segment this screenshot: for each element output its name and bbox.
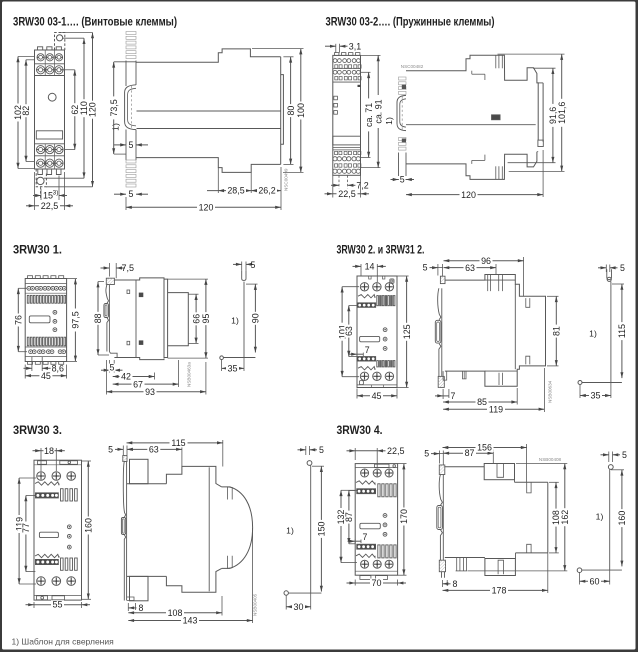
svg-text:160: 160 — [617, 511, 627, 526]
svg-text:115: 115 — [171, 438, 185, 448]
svg-text:66: 66 — [191, 314, 201, 324]
svg-text:70: 70 — [371, 578, 381, 588]
svg-text:5: 5 — [622, 450, 627, 460]
svg-text:125: 125 — [402, 324, 412, 339]
svg-text:88: 88 — [93, 313, 103, 323]
svg-text:8,6: 8,6 — [52, 364, 64, 374]
svg-text:85: 85 — [477, 397, 487, 407]
svg-text:63: 63 — [149, 445, 159, 455]
svg-text:76: 76 — [14, 315, 24, 325]
svg-text:81: 81 — [552, 326, 562, 336]
svg-text:22,5: 22,5 — [41, 201, 59, 211]
svg-text:1): 1) — [286, 525, 294, 535]
svg-text:160: 160 — [84, 518, 94, 533]
svg-text:101,6: 101,6 — [557, 102, 567, 124]
svg-text:100: 100 — [296, 103, 306, 118]
svg-text:5: 5 — [129, 189, 134, 199]
svg-text:1) Шаблон для сверления: 1) Шаблон для сверления — [12, 637, 115, 647]
svg-text:3RW30 2. и 3RW31 2.: 3RW30 2. и 3RW31 2. — [337, 243, 425, 257]
svg-text:5: 5 — [129, 140, 134, 150]
svg-text:5: 5 — [108, 444, 113, 454]
svg-text:8: 8 — [453, 579, 458, 589]
svg-text:22,5: 22,5 — [387, 446, 405, 456]
svg-text:NSC00482: NSC00482 — [401, 64, 424, 69]
svg-text:26,2: 26,2 — [258, 186, 275, 196]
svg-text:35: 35 — [227, 363, 237, 373]
svg-text:5: 5 — [620, 263, 625, 273]
svg-text:NSB00405: NSB00405 — [253, 593, 258, 616]
svg-text:7: 7 — [451, 391, 456, 401]
svg-text:120: 120 — [461, 190, 476, 200]
svg-text:NSC00499: NSC00499 — [284, 168, 289, 191]
svg-text:120: 120 — [199, 203, 214, 213]
svg-text:5: 5 — [423, 263, 428, 273]
svg-text:80: 80 — [286, 106, 296, 116]
svg-text:96: 96 — [481, 256, 491, 266]
svg-text:67: 67 — [133, 379, 143, 389]
svg-text:115: 115 — [617, 324, 627, 338]
svg-text:8: 8 — [139, 603, 144, 613]
svg-text:1): 1) — [384, 117, 394, 125]
svg-text:60: 60 — [589, 576, 599, 586]
svg-text:178: 178 — [492, 586, 507, 596]
svg-text:156: 156 — [477, 443, 492, 453]
svg-text:63: 63 — [344, 326, 354, 336]
svg-text:73,5: 73,5 — [109, 99, 119, 116]
svg-text:28,5: 28,5 — [227, 186, 244, 196]
svg-text:90: 90 — [251, 313, 261, 323]
svg-text:120: 120 — [88, 102, 98, 117]
svg-text:119: 119 — [489, 404, 503, 414]
svg-text:170: 170 — [399, 509, 409, 524]
svg-text:93: 93 — [145, 387, 155, 397]
svg-text:87: 87 — [465, 448, 475, 458]
svg-text:7,5: 7,5 — [122, 263, 135, 273]
svg-text:18: 18 — [44, 446, 54, 456]
svg-text:45: 45 — [372, 391, 382, 401]
svg-text:22,5: 22,5 — [338, 189, 356, 199]
svg-text:143: 143 — [183, 616, 198, 626]
svg-text:5: 5 — [400, 174, 405, 184]
svg-text:3): 3) — [53, 190, 59, 197]
svg-text:ca. 71: ca. 71 — [364, 103, 374, 127]
svg-text:7: 7 — [365, 345, 370, 355]
svg-text:7: 7 — [363, 532, 368, 542]
svg-text:150: 150 — [317, 521, 327, 536]
svg-text:1): 1) — [589, 328, 597, 338]
svg-text:77: 77 — [21, 523, 31, 533]
svg-text:15: 15 — [43, 190, 53, 200]
svg-text:3RW30 1.: 3RW30 1. — [13, 243, 62, 257]
svg-text:1): 1) — [231, 315, 239, 325]
svg-text:55: 55 — [52, 599, 62, 609]
svg-text:5: 5 — [319, 445, 324, 455]
svg-text:63: 63 — [465, 263, 475, 273]
svg-text:ca. 91: ca. 91 — [373, 99, 383, 123]
svg-text:1): 1) — [111, 123, 121, 131]
svg-text:3,1: 3,1 — [349, 41, 361, 51]
svg-text:5: 5 — [110, 363, 115, 373]
svg-text:3RW30 03-1…. (Винтовые клеммы): 3RW30 03-1…. (Винтовые клеммы) — [13, 15, 177, 29]
svg-text:35: 35 — [590, 391, 600, 401]
svg-text:1): 1) — [596, 512, 604, 522]
svg-text:162: 162 — [560, 510, 570, 525]
svg-text:30: 30 — [293, 602, 303, 612]
svg-text:14: 14 — [365, 261, 375, 271]
svg-text:95: 95 — [201, 314, 211, 324]
svg-text:NSB00634: NSB00634 — [548, 380, 553, 403]
svg-text:42: 42 — [121, 372, 131, 382]
svg-text:82: 82 — [21, 106, 31, 116]
svg-text:3RW30 03-2…. (Пружинные клеммы: 3RW30 03-2…. (Пружинные клеммы) — [326, 15, 495, 29]
svg-text:3RW30 4.: 3RW30 4. — [337, 423, 383, 437]
svg-text:108: 108 — [168, 608, 183, 618]
svg-text:NSB00408: NSB00408 — [539, 457, 562, 462]
svg-text:87: 87 — [344, 512, 354, 522]
svg-text:5: 5 — [424, 449, 429, 459]
svg-text:NSB00463a: NSB00463a — [187, 362, 192, 387]
svg-text:3RW30 3.: 3RW30 3. — [13, 423, 62, 437]
svg-text:45: 45 — [41, 371, 51, 381]
svg-text:97,5: 97,5 — [71, 311, 81, 328]
svg-text:5: 5 — [251, 260, 256, 270]
svg-text:7,2: 7,2 — [356, 180, 368, 190]
